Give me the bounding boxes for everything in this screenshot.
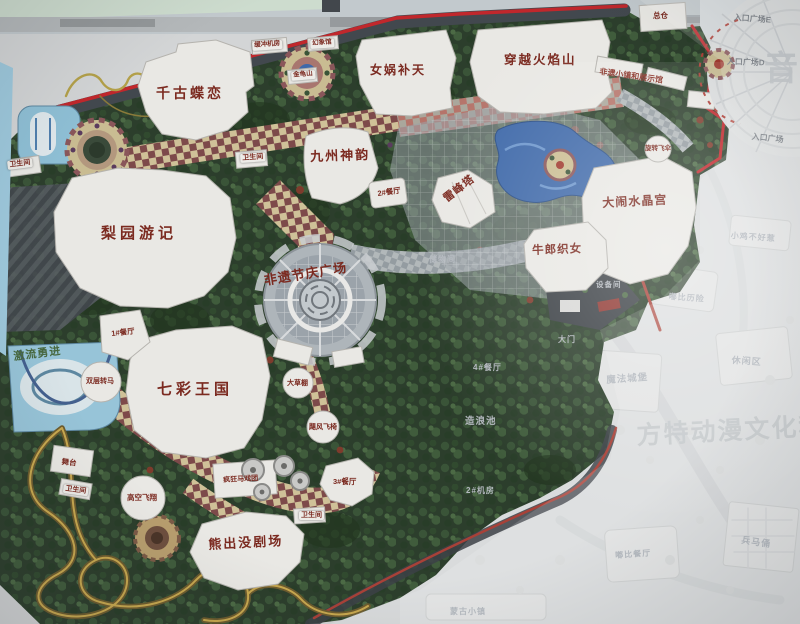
facility-label: 高空飞翔 [127, 494, 157, 502]
watermark-text: 音 [764, 52, 800, 86]
facility-label: 幻象馆 [310, 38, 334, 48]
attraction-label: 七彩王国 [157, 382, 233, 397]
restroom-label: 卫生间 [240, 152, 266, 163]
attraction-label: 熊出没剧场 [208, 534, 284, 551]
attraction-label: 九州神韵 [310, 148, 370, 163]
facility-label: 飓风飞椅 [309, 424, 337, 431]
restroom-label: 卫生间 [299, 511, 324, 520]
facility-label: 舞台 [61, 458, 77, 467]
ghost-label: 大门 [558, 336, 576, 344]
ghost-label: 蒙古小镇 [450, 608, 486, 616]
facility-label: 旋转飞伞 [645, 146, 671, 153]
map-graphic [0, 0, 800, 624]
ghost-label: 4#餐厅 [473, 364, 502, 372]
ghost-label: 造浪池 [465, 417, 497, 427]
attraction-label: 总仓 [653, 12, 668, 20]
attraction-label: 梨园游记 [101, 226, 177, 241]
facility-label: 3#餐厅 [333, 478, 356, 486]
facility-label: 大草棚 [287, 380, 308, 387]
attraction-label: 千古蝶恋 [156, 86, 224, 100]
attraction-label: 女娲补天 [370, 64, 426, 76]
ghost-label: 设备间 [596, 281, 622, 289]
facility-label: 双层转马 [86, 378, 114, 385]
attraction-label: 牛郎织女 [532, 244, 582, 257]
attraction-label: 穿越火焰山 [504, 54, 577, 67]
ghost-label: 2#机房 [466, 487, 495, 495]
entrance-label: 入口广场D [727, 58, 765, 67]
park-map-photo: 千古蝶恋 梨园游记 九州神韵 女娲补天 穿越火焰山 雷峰塔 大闹水晶宫 牛郎织女… [0, 0, 800, 624]
attraction-label: 大闹水晶宫 [602, 194, 668, 209]
ghost-label: 储物间 [429, 256, 456, 264]
